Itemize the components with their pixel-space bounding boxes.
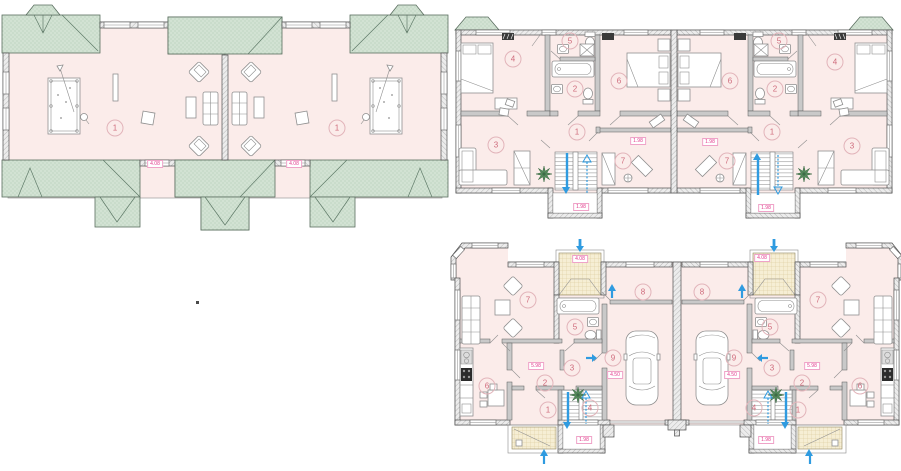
wall-mirror xyxy=(113,74,118,101)
floor-plans-sheet: 114.084.08452631765241731.981.981.981.98… xyxy=(0,0,901,471)
bathtub xyxy=(557,298,599,314)
sink xyxy=(588,318,599,327)
car xyxy=(624,331,660,405)
sink xyxy=(552,85,563,94)
toilet xyxy=(585,330,601,340)
nightstand xyxy=(658,89,670,101)
party-wall xyxy=(671,30,677,193)
first-floor-plan xyxy=(450,238,901,471)
entry-porch xyxy=(554,250,606,298)
entry-porch xyxy=(508,425,558,453)
toilet xyxy=(583,88,593,104)
roof-gable xyxy=(455,17,499,30)
nightstand xyxy=(658,39,670,51)
chimney xyxy=(603,425,614,437)
chimney xyxy=(668,420,686,430)
ac-unit-icon xyxy=(602,33,614,40)
party-wall xyxy=(673,262,681,425)
party-wall xyxy=(222,55,228,160)
second-floor-plan xyxy=(452,13,901,230)
bed xyxy=(461,43,493,93)
stray-dot-artifact xyxy=(196,301,199,304)
entry-arrow-icon xyxy=(805,449,813,464)
plant-icon xyxy=(536,166,552,182)
attic-plan xyxy=(0,0,450,235)
wardrobe xyxy=(514,151,530,185)
kitchen-counter xyxy=(460,348,473,416)
bed xyxy=(627,53,670,87)
bathtub xyxy=(552,61,594,77)
entry-arrow-icon xyxy=(540,449,548,464)
sink xyxy=(558,45,569,54)
cabinet xyxy=(602,153,615,185)
garage-door xyxy=(610,421,665,423)
staircase xyxy=(555,152,597,190)
first-floor-left-unit xyxy=(451,243,677,453)
side-table xyxy=(141,111,155,125)
shower xyxy=(580,44,594,56)
